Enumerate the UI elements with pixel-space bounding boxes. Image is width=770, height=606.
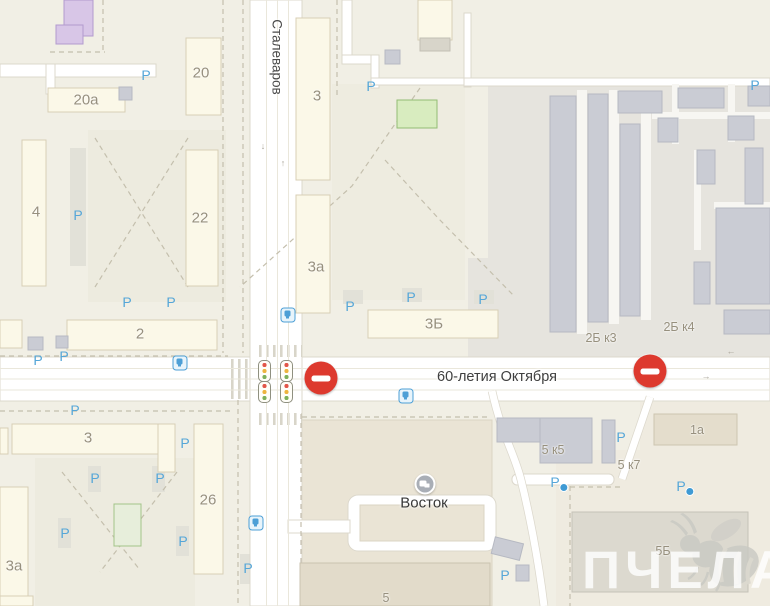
building-label: 3а	[308, 259, 325, 276]
building-label: 3	[313, 88, 321, 105]
bus-stop-icon[interactable]	[281, 308, 296, 323]
parking-icon[interactable]: P	[70, 402, 79, 418]
parking-icon[interactable]: P	[141, 67, 150, 83]
parking-icon[interactable]: P	[406, 289, 415, 305]
building-3a-bottom[interactable]	[0, 487, 28, 606]
traffic-light-icon	[280, 360, 293, 382]
building-3a-top[interactable]	[296, 195, 330, 313]
parking-icon[interactable]: P	[166, 294, 175, 310]
road-arrow-icon: ←	[727, 346, 736, 356]
shed	[385, 50, 400, 64]
parking-icon[interactable]: P	[59, 348, 68, 364]
poi-label-vostok: Восток	[400, 495, 447, 512]
building-label: 20а	[73, 92, 98, 109]
parking-icon[interactable]: P	[243, 560, 252, 576]
parking-entrance-icon[interactable]: P	[550, 474, 559, 490]
parking-icon[interactable]: P	[73, 207, 82, 223]
watermark-text: ПЧЕЛА	[582, 544, 770, 597]
parking-icon[interactable]: P	[33, 352, 42, 368]
traffic-light-icon	[280, 381, 293, 403]
no-entry-sign[interactable]	[305, 362, 338, 395]
street-label-stalevarov: Сталеваров	[270, 19, 285, 94]
no-entry-sign[interactable]	[634, 355, 667, 388]
map-canvas[interactable]: Сталеваров 60-летия Октября 20 20а 4 22 …	[0, 0, 770, 606]
building-5[interactable]	[300, 563, 490, 606]
parking-icon[interactable]: P	[366, 78, 375, 94]
parking-icon[interactable]: P	[90, 470, 99, 486]
green-area	[397, 100, 437, 128]
parking-icon[interactable]: P	[155, 470, 164, 486]
building-label: 5 к7	[618, 458, 641, 472]
building-label: 2Б к4	[663, 320, 694, 334]
building-label: 5 к5	[542, 443, 565, 457]
building-label: 2	[136, 326, 144, 343]
parking-icon[interactable]: P	[478, 291, 487, 307]
road-arrow-icon: ↓	[261, 141, 266, 151]
parking-icon[interactable]: P	[60, 525, 69, 541]
building-label: 20	[193, 65, 210, 82]
bus-stop-icon[interactable]	[399, 389, 414, 404]
parking-icon[interactable]: P	[180, 435, 189, 451]
building-label: 26	[200, 492, 217, 509]
building-label: 3	[84, 430, 92, 447]
building-top[interactable]	[418, 0, 452, 40]
parking-entrance-icon[interactable]: P	[676, 478, 685, 494]
shed	[28, 337, 43, 350]
building-label: 1а	[690, 423, 704, 437]
road-arrow-icon: →	[702, 371, 711, 381]
building-label: 3а	[6, 558, 23, 575]
shed	[119, 87, 132, 100]
traffic-light-icon	[258, 381, 271, 403]
bus-stop-icon[interactable]	[249, 516, 264, 531]
building-label: 5	[383, 591, 390, 605]
parking-icon[interactable]: P	[500, 567, 509, 583]
building-label: 22	[192, 210, 209, 227]
parking-icon[interactable]: P	[122, 294, 131, 310]
parking-icon[interactable]: P	[345, 298, 354, 314]
parking-icon[interactable]: P	[750, 77, 759, 93]
building-label: 4	[32, 204, 40, 221]
building-5k7[interactable]	[602, 420, 615, 463]
shed	[56, 336, 68, 348]
building-label: 2Б к3	[585, 331, 616, 345]
road-arrow-icon: ↑	[281, 158, 286, 168]
map-base-layer	[0, 0, 770, 606]
street-label-oktyabrya: 60-летия Октября	[437, 369, 557, 385]
bus-stop-icon[interactable]	[173, 356, 188, 371]
playground	[114, 504, 141, 546]
traffic-light-icon	[258, 360, 271, 382]
parking-icon[interactable]: P	[178, 533, 187, 549]
cinema-icon[interactable]	[415, 474, 436, 495]
building-label: 3Б	[425, 316, 443, 333]
parking-icon[interactable]: P	[616, 429, 625, 445]
